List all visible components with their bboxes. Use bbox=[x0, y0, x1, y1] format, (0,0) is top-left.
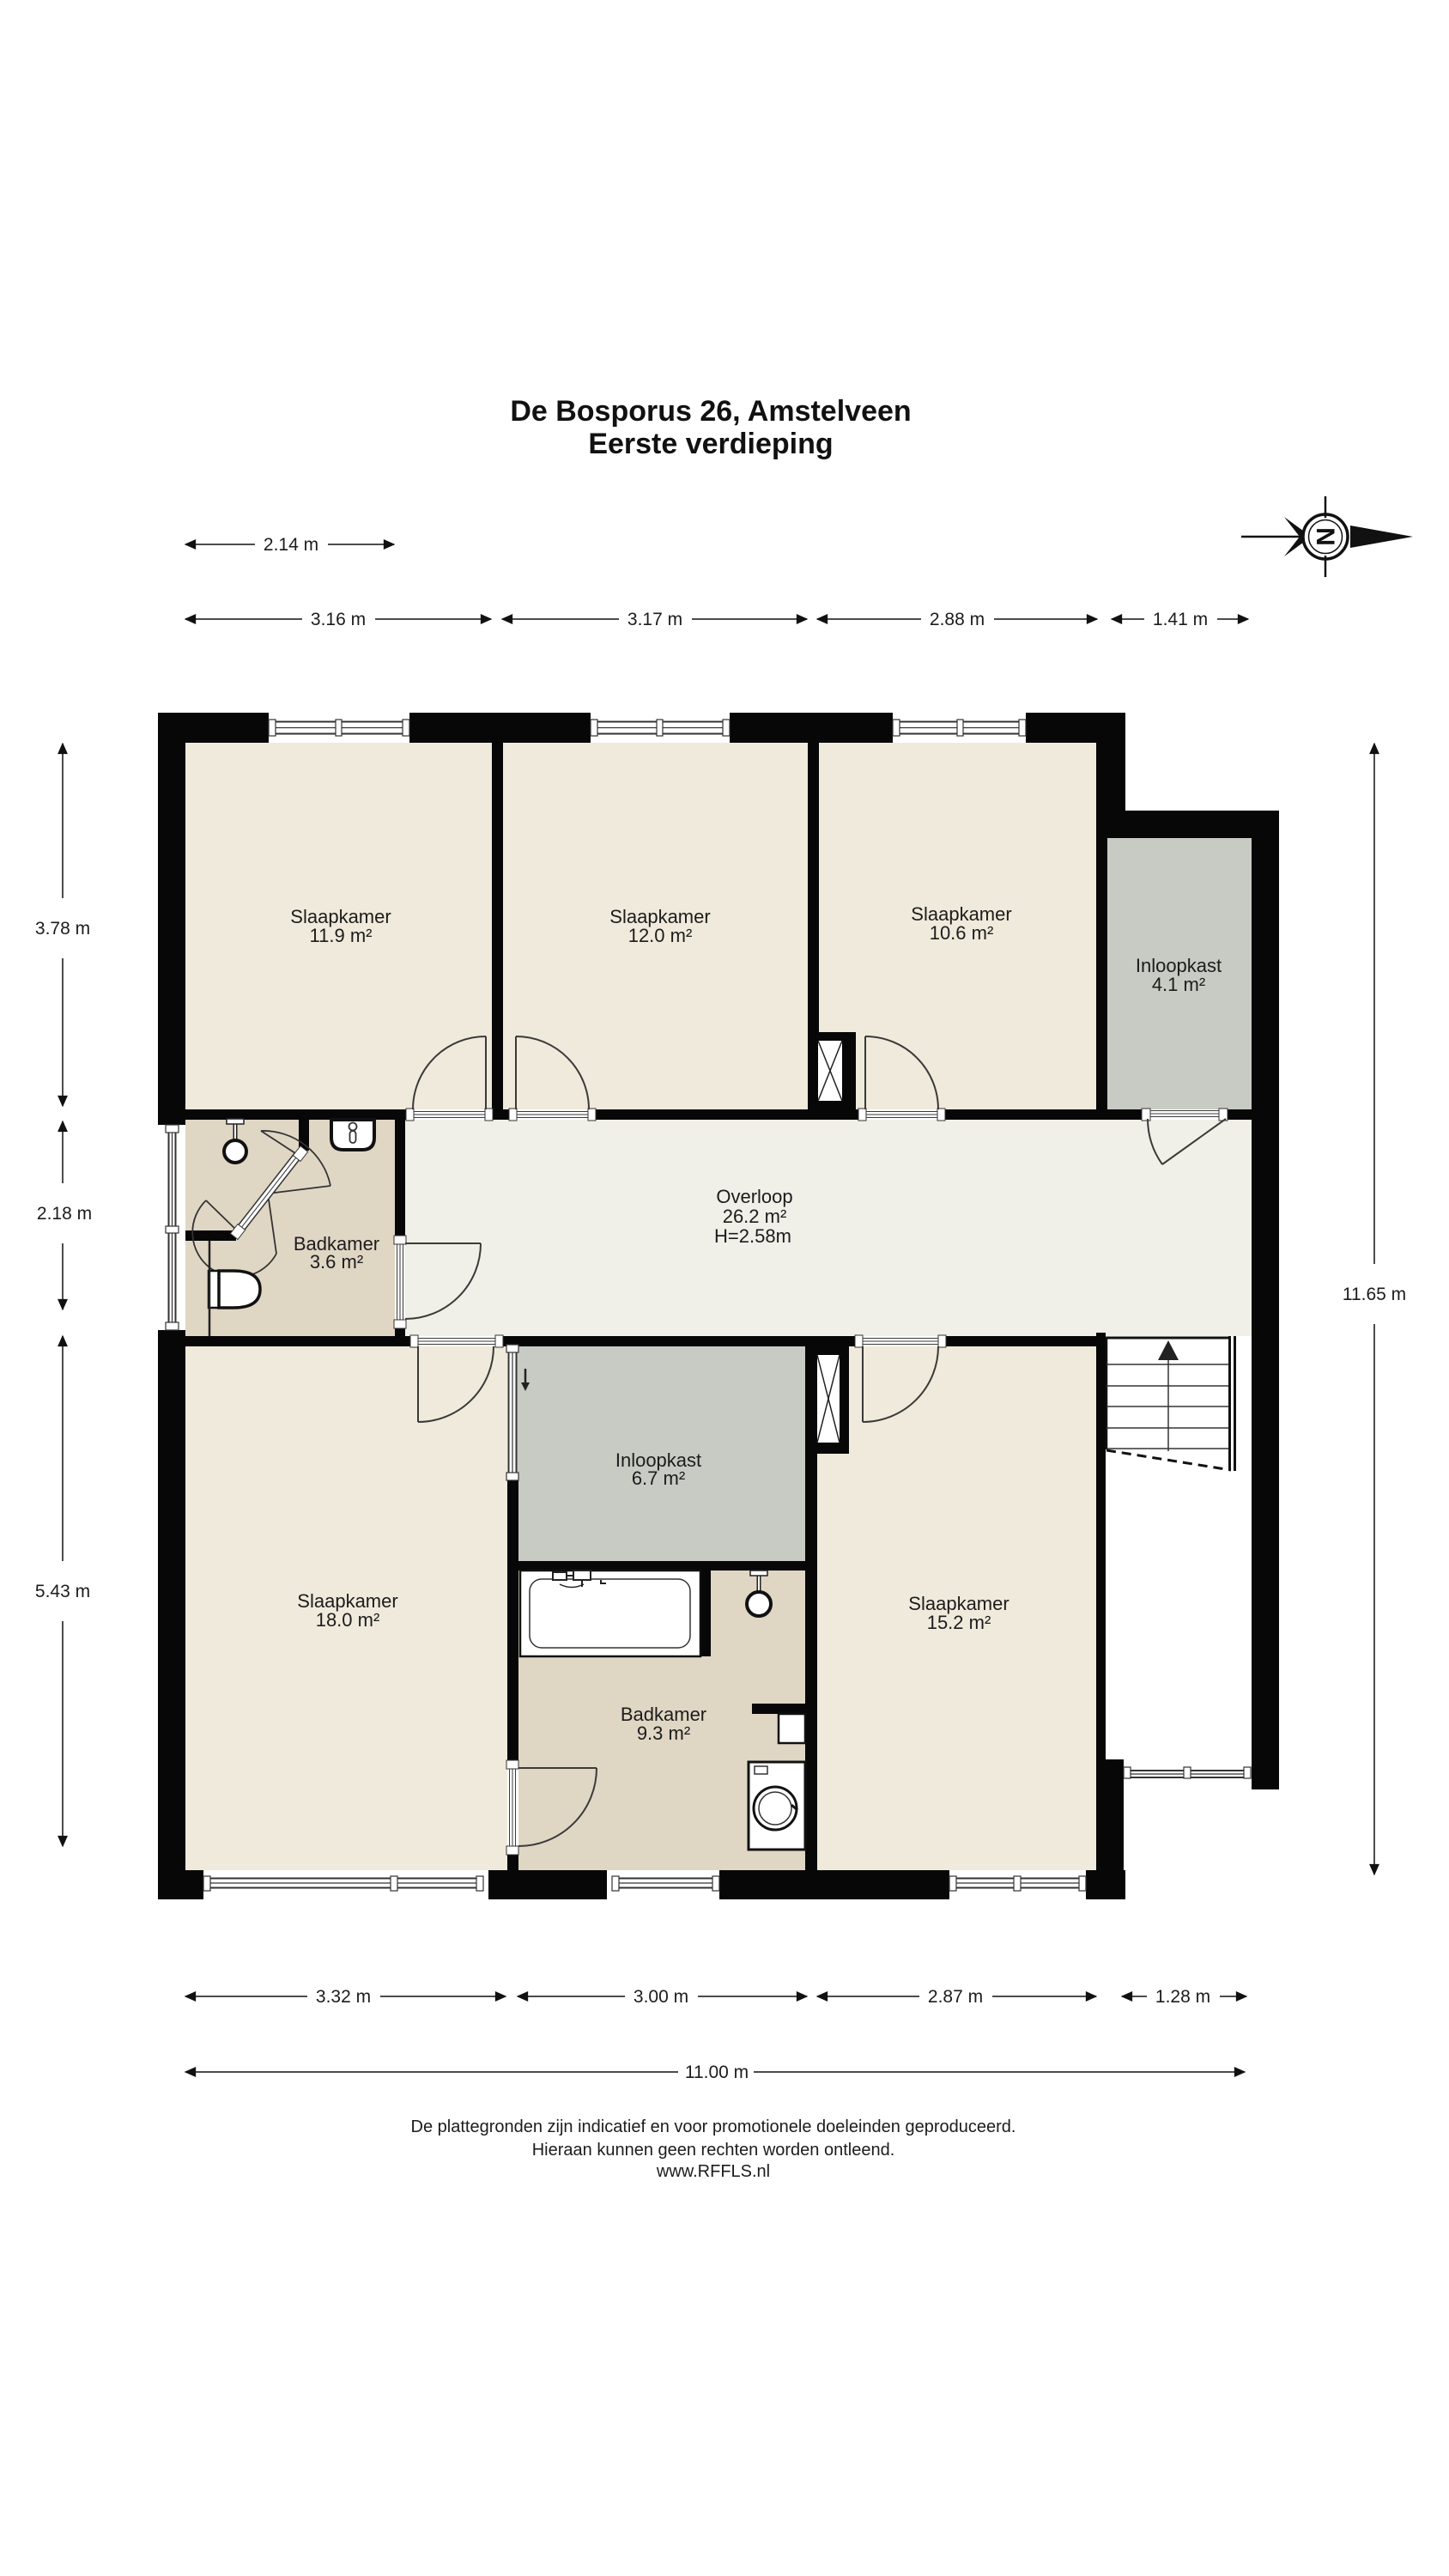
svg-text:H=2.58m: H=2.58m bbox=[714, 1225, 791, 1247]
svg-text:3.00 m: 3.00 m bbox=[634, 1987, 688, 2007]
svg-text:18.0 m²: 18.0 m² bbox=[316, 1609, 380, 1631]
svg-text:11.65 m: 11.65 m bbox=[1343, 1285, 1406, 1304]
svg-text:5.43 m: 5.43 m bbox=[35, 1582, 90, 1601]
svg-text:Hieraan kunnen geen rechten wo: Hieraan kunnen geen rechten worden ontle… bbox=[532, 2141, 895, 2160]
svg-text:15.2 m²: 15.2 m² bbox=[927, 1612, 991, 1633]
svg-text:11.00 m: 11.00 m bbox=[685, 2063, 749, 2082]
svg-text:De plattegronden zijn indicati: De plattegronden zijn indicatief en voor… bbox=[411, 2117, 1016, 2136]
svg-text:3.17 m: 3.17 m bbox=[627, 610, 682, 629]
svg-text:3.32 m: 3.32 m bbox=[316, 1987, 371, 2007]
svg-text:Overloop: Overloop bbox=[716, 1186, 792, 1207]
svg-text:1.28 m: 1.28 m bbox=[1155, 1987, 1210, 2007]
svg-text:11.9 m²: 11.9 m² bbox=[310, 925, 373, 946]
svg-text:De Bosporus 26, Amstelveen: De Bosporus 26, Amstelveen bbox=[510, 395, 911, 428]
svg-text:3.78 m: 3.78 m bbox=[35, 919, 90, 939]
svg-text:3.6 m²: 3.6 m² bbox=[310, 1251, 363, 1273]
svg-text:N: N bbox=[1311, 527, 1339, 546]
svg-text:www.RFFLS.nl: www.RFFLS.nl bbox=[656, 2162, 770, 2181]
svg-text:3.16 m: 3.16 m bbox=[311, 610, 366, 629]
svg-text:26.2 m²: 26.2 m² bbox=[723, 1206, 787, 1227]
svg-text:4.1 m²: 4.1 m² bbox=[1152, 974, 1205, 995]
svg-text:12.0 m²: 12.0 m² bbox=[628, 925, 693, 946]
svg-text:2.88 m: 2.88 m bbox=[930, 610, 985, 629]
svg-text:9.3 m²: 9.3 m² bbox=[637, 1722, 690, 1744]
svg-text:2.87 m: 2.87 m bbox=[928, 1987, 983, 2007]
svg-text:6.7 m²: 6.7 m² bbox=[632, 1467, 685, 1489]
svg-text:1.41 m: 1.41 m bbox=[1153, 610, 1208, 629]
svg-text:2.18 m: 2.18 m bbox=[37, 1204, 92, 1224]
svg-text:10.6 m²: 10.6 m² bbox=[930, 922, 994, 944]
svg-text:Eerste verdieping: Eerste verdieping bbox=[588, 428, 833, 460]
svg-text:2.14 m: 2.14 m bbox=[264, 535, 318, 555]
